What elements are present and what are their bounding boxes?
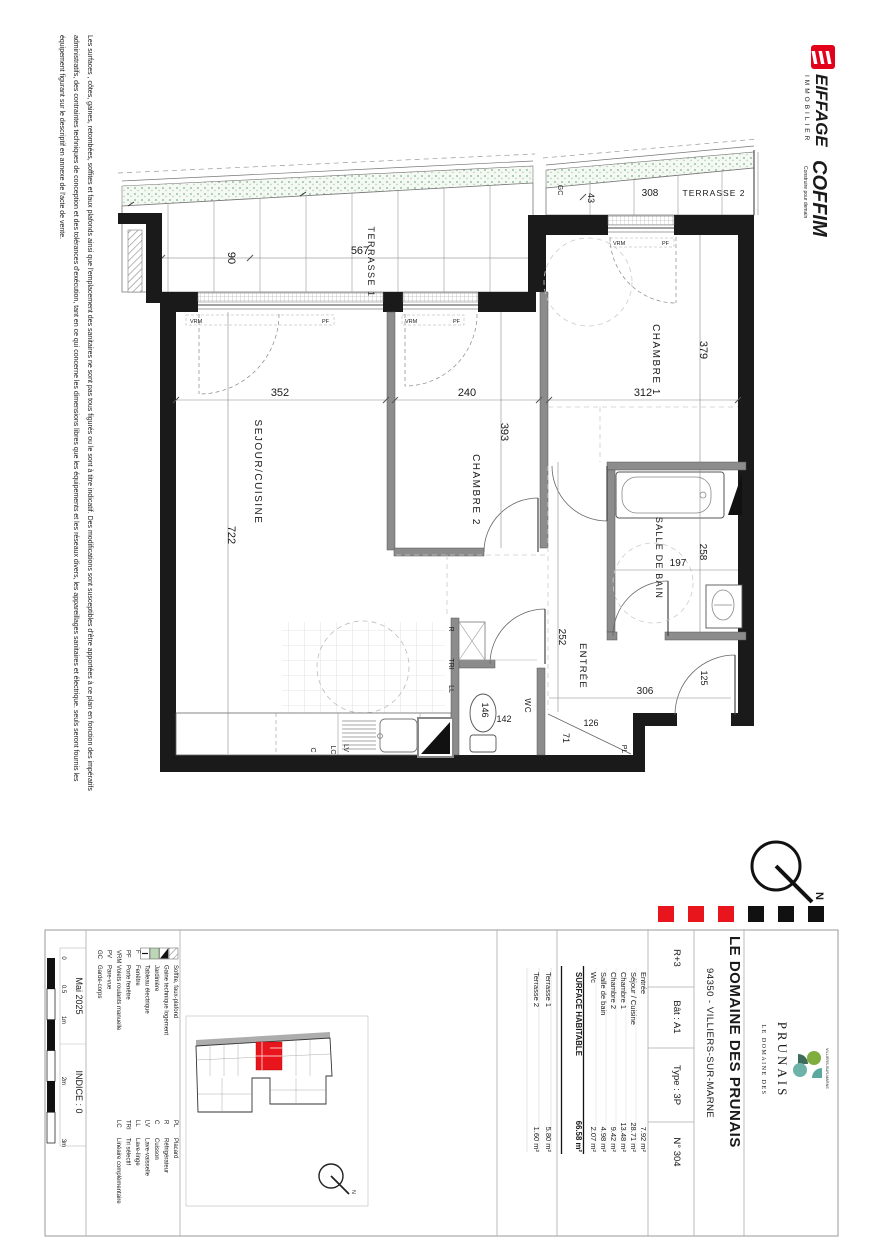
wc-room: WC 146 142	[470, 694, 532, 752]
legend-abbr-c: C	[153, 1120, 159, 1125]
surface-row-sdb-label: Salle de bain	[599, 972, 608, 1015]
room-label-chambre-2: CHAMBRE 2	[470, 454, 481, 526]
tag-lave-linge: LL	[447, 685, 454, 693]
legend-label-f: Fenêtre	[134, 965, 140, 986]
entry-placard: PL 126 71	[548, 714, 631, 754]
swatch-black-3	[808, 906, 824, 922]
bathtub-icon	[616, 472, 724, 518]
legend-abbr-vrm: VRM	[115, 950, 121, 963]
swatch-red-3	[718, 906, 734, 922]
eiffage-logo-icon	[811, 45, 835, 69]
dim-ch1-h: 379	[697, 341, 709, 359]
dim-terrace2-width: 308	[642, 188, 659, 199]
tag-lave-vaisselle: LV	[342, 744, 349, 752]
surface-row-wc-label: Wc	[589, 972, 598, 983]
legend-abbr-lc: LC	[115, 1120, 121, 1128]
legend-label-r: Réfrigérateur	[163, 1138, 169, 1173]
tag-pf-2: PF	[453, 319, 461, 325]
scale-tick-3m: 3m	[60, 1139, 66, 1147]
plan-drawing: Les surfaces , côtes, gaines, retombées,…	[0, 0, 877, 1240]
dim-sdb-w: 197	[670, 558, 687, 569]
room-label-sejour: SEJOUR/CUISINE	[252, 420, 263, 525]
room-label-terrasse-2: TERRASSE 2	[683, 188, 746, 198]
brand-name: PRUNAIS	[775, 1022, 790, 1099]
terrace-row-1-label: Terrasse 1	[544, 972, 553, 1007]
info-cell-type: Type : 3P	[671, 1065, 682, 1105]
dim-entry-door: 125	[699, 670, 709, 685]
legend-abbr-lv: LV	[144, 1120, 150, 1127]
disclaimer-line-2: administratifs, des contraintes techniqu…	[72, 35, 79, 782]
dim-terrace1-depth: 90	[225, 252, 237, 264]
swatch-black-2	[778, 906, 794, 922]
legend-icon-soffite	[169, 948, 178, 959]
dim-placard-w: 126	[583, 718, 598, 728]
info-cell-level: R+3	[671, 949, 682, 967]
legend-label-pl: Placard	[172, 1138, 178, 1158]
swatch-red-1	[658, 906, 674, 922]
legend-label-lc: Linéaire complémentaire	[115, 1138, 121, 1204]
legend-abbr-gc: GC	[96, 950, 102, 960]
brand-top-line: LE DOMAINE DES	[760, 1025, 766, 1096]
legend-label-soffite: Soffite, faux-plafond	[172, 965, 178, 1018]
legend-abbr-f: F	[134, 950, 140, 954]
room-label-terrasse-1: TERRASSE 1	[366, 226, 376, 297]
info-cell-numero: N° 304	[671, 1137, 682, 1166]
tag-placard: PL	[620, 745, 627, 754]
dim-entree-w: 306	[637, 686, 654, 697]
north-indicator: N	[752, 842, 825, 902]
surface-row-sdb-value: 4.98 m²	[599, 1127, 608, 1153]
tag-vrm-2: VRM	[405, 319, 418, 325]
disclaimer-line-1: Les surfaces , côtes, gaines, retombées,…	[86, 35, 93, 791]
coffim-logo-tagline: Construire pour demain	[802, 166, 808, 218]
terrace-1: 90 567 TERRASSE 1	[118, 154, 536, 298]
scale-tick-05: 0.5	[60, 985, 66, 994]
bathroom	[613, 472, 742, 628]
room-label-sdb: SALLE DE BAIN	[654, 517, 664, 599]
room-label-chambre-1: CHAMBRE 1	[650, 324, 661, 396]
legend-label-jardiniere: Jardinière	[153, 965, 159, 992]
key-plan-panel: N	[186, 1016, 368, 1206]
eiffage-logo-text: EIFFAGE	[812, 74, 831, 147]
floor-plan-sheet: Les surfaces , côtes, gaines, retombées,…	[0, 0, 877, 1240]
legend-label-pv: Pare-vue	[106, 965, 112, 990]
plan-indice: INDICE : 0	[74, 1070, 84, 1113]
legend-label-tri: Tri sélectif	[125, 1138, 131, 1165]
dim-ch1-w: 312	[634, 387, 652, 399]
tag-cuisson: C	[309, 747, 316, 752]
dim-ch2-w: 240	[458, 387, 476, 399]
dim-sdb-h: 258	[697, 544, 708, 561]
tag-lineaire: LC	[329, 746, 336, 755]
surface-row-wc-value: 2.07 m²	[589, 1127, 598, 1153]
north-label: N	[813, 892, 825, 900]
tag-pf-1: PF	[322, 319, 330, 325]
plan-date: Mai 2025	[74, 977, 84, 1014]
room-label-wc: WC	[523, 698, 532, 713]
tag-refrigerateur: R	[447, 626, 454, 631]
legend-label-lv: Lave-vaisselle	[144, 1138, 150, 1177]
surface-total-label: SURFACE HABITABLE	[574, 972, 583, 1056]
legend-abbr-ll: LL	[134, 1120, 140, 1127]
surface-row-ch1-value: 13.48 m²	[619, 1122, 628, 1152]
kitchen-sink-icon	[380, 719, 417, 752]
legend-abbr-r: R	[163, 1120, 169, 1125]
swatch-black-1	[748, 906, 764, 922]
kitchen-tiles	[282, 622, 445, 713]
legend-label-gc: Garde-corps	[96, 965, 102, 998]
room-label-entree: ENTRÉE	[577, 643, 588, 689]
dim-entree-h: 252	[556, 629, 567, 646]
legend-label-tableau: Tableau électrique	[144, 965, 150, 1014]
legend-label-ll: Lave-linge	[134, 1138, 140, 1166]
surface-row-ch2-label: Chambre 2	[609, 972, 618, 1009]
color-swatches	[658, 906, 824, 922]
project-title: LE DOMAINE DES PRUNAIS	[726, 936, 743, 1148]
terrace-row-2-value: 1.60 m²	[532, 1127, 541, 1153]
dim-terrace2-depth: 43	[586, 193, 596, 203]
coffim-logo-text: COFFIM	[808, 160, 830, 238]
title-block: Mai 2025 INDICE : 0 0 0.5 1m 2m 3m	[45, 930, 838, 1236]
logos: EIFFAGE IMMOBILIER COFFIM Construire pou…	[802, 45, 835, 238]
tag-pf-3: PF	[662, 241, 670, 247]
dim-wc-2: 142	[496, 714, 511, 724]
dim-placard-h: 71	[561, 733, 571, 743]
legend-abbr-pl: PL	[172, 1120, 178, 1128]
legend-label-c: Cuisson	[153, 1138, 159, 1160]
tag-vrm-1: VRM	[190, 319, 203, 325]
info-cell-batiment: Bât : A1	[671, 1000, 682, 1033]
tag-garde-corps: GC	[556, 185, 563, 196]
surface-row-ch1-label: Chambre 1	[619, 972, 628, 1009]
tag-tri: TRI	[447, 658, 454, 669]
terrace-row-1-value: 5.80 m²	[544, 1127, 553, 1153]
legend-icon-jardiniere	[150, 948, 159, 959]
dim-sejour-h: 722	[225, 526, 237, 544]
legend-abbr-pv: PV	[106, 950, 112, 958]
scale-tick-2m: 2m	[60, 1077, 66, 1085]
gaine-technique-icon-2	[728, 474, 742, 515]
key-plan-north-label: N	[350, 1190, 356, 1194]
brand-side-text: VILLIERS-SUR-MARNE	[825, 1048, 829, 1089]
surface-row-sejour-value: 28.71 m²	[629, 1122, 638, 1152]
legend-abbr-pf: PF	[125, 950, 131, 958]
dim-sejour-w: 352	[271, 387, 289, 399]
legend-label-vrm: Volets roulants manuelle	[115, 965, 121, 1031]
dim-wc-1: 146	[480, 702, 490, 717]
legend-label-pf: Porte fenêtre	[125, 965, 131, 1000]
legend-icon-tableau	[141, 948, 150, 959]
disclaimer-line-3: équipement figurant sur le descriptif en…	[58, 35, 65, 239]
terrace-2: 308 TERRASSE 2 43 GC	[543, 139, 758, 215]
bathroom-sink-icon	[706, 585, 742, 628]
legend-icon-gaine	[160, 948, 169, 959]
surface-row-sejour-label: Séjour / Cuisine	[629, 972, 638, 1025]
legend-label-gaine: Gaine technique logement	[163, 965, 169, 1035]
surface-total-value: 66.58 m²	[574, 1121, 583, 1153]
dim-ch2-h: 393	[498, 423, 510, 441]
swatch-red-2	[688, 906, 704, 922]
tag-vrm-3: VRM	[613, 241, 626, 247]
surface-row-entree-value: 7.92 m²	[639, 1127, 648, 1153]
legend-abbr-tri: TRI	[125, 1120, 131, 1130]
project-address: 94350 - VILLIERS-SUR-MARNE	[704, 968, 715, 1118]
surface-row-ch2-value: 9.42 m²	[609, 1127, 618, 1153]
eiffage-logo-subtext: IMMOBILIER	[803, 75, 810, 143]
surface-row-entree-label: Entrée	[639, 972, 648, 994]
terrace-row-2-label: Terrasse 2	[532, 972, 541, 1007]
disclaimer-text: Les surfaces , côtes, gaines, retombées,…	[58, 35, 93, 791]
scale-tick-1m: 1m	[60, 1016, 66, 1024]
